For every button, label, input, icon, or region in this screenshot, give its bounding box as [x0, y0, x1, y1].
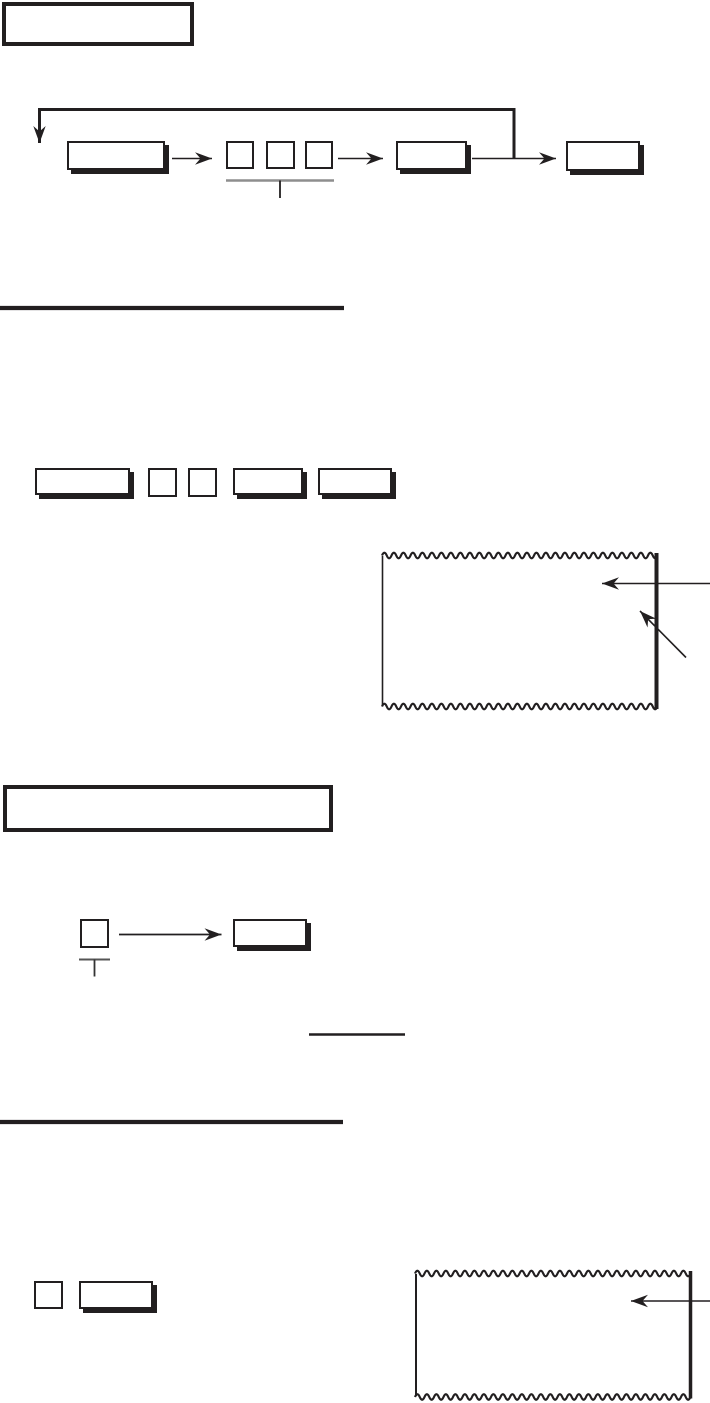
flow1-digit-box-1	[226, 141, 254, 169]
receipt1-top-wavy-edge	[382, 553, 658, 559]
sequence-digit-box-2	[188, 468, 217, 497]
single-flow-digit-box	[80, 919, 109, 948]
flow1-digit-box-2	[266, 141, 295, 169]
section-1-title-box	[2, 2, 194, 46]
sequence-key-wide	[35, 468, 130, 495]
sequence-digit-box-1	[148, 468, 177, 497]
manual-page	[0, 0, 710, 1403]
flow1-digit-box-3	[305, 141, 333, 169]
single-flow-key	[233, 919, 307, 947]
receipt-illustration-1	[382, 553, 658, 710]
bottom-digit-box	[34, 1281, 63, 1309]
sequence-key-b	[318, 468, 392, 495]
flow1-step-key-2	[396, 141, 467, 170]
receipt2-bottom-wavy-edge	[415, 1394, 691, 1400]
sequence-key-a	[233, 468, 303, 495]
section-2-title-box	[3, 785, 333, 832]
flow1-step-key-3	[566, 141, 640, 171]
bottom-key	[79, 1281, 153, 1309]
flow1-step-key-1	[67, 141, 165, 170]
receipt2-top-wavy-edge	[415, 1271, 691, 1277]
receipt1-diagonal-pointer-arrow	[640, 611, 686, 658]
receipt-illustration-2	[415, 1271, 691, 1400]
receipt1-bottom-wavy-edge	[382, 704, 658, 710]
diagram-overlay	[0, 0, 710, 1403]
